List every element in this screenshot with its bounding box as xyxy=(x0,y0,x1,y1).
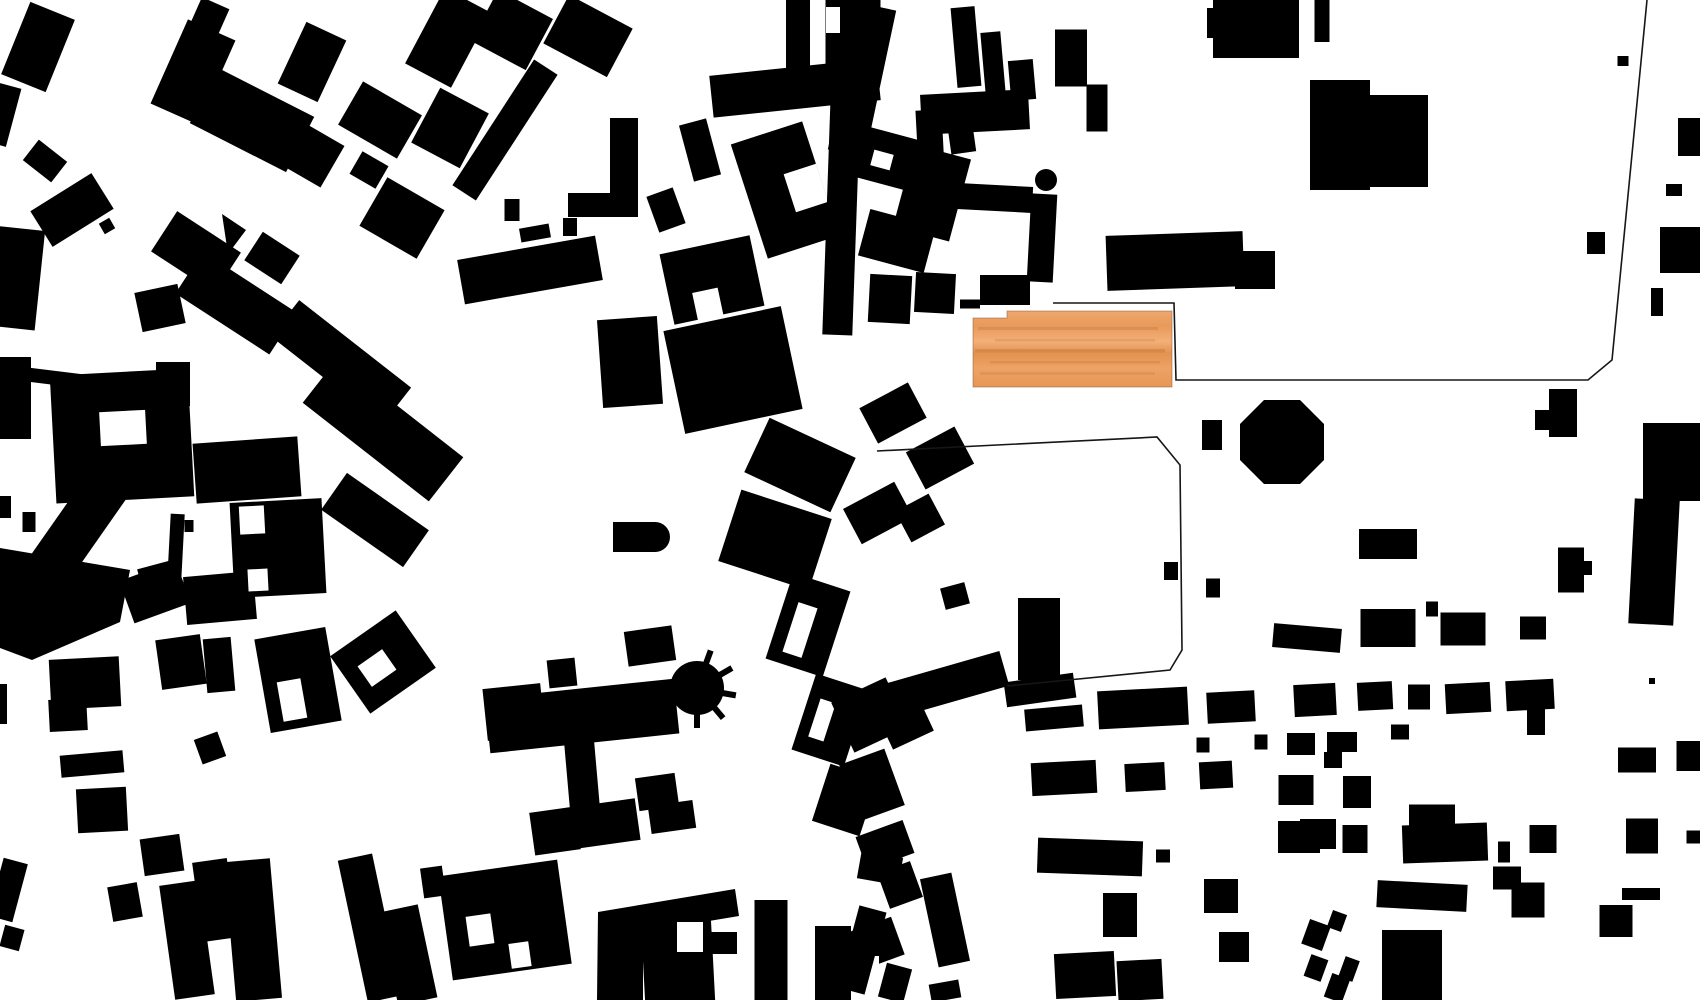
site-plan-canvas xyxy=(0,0,1700,1000)
building-footprint xyxy=(0,496,11,518)
building-footprint xyxy=(755,900,788,1000)
building-footprint xyxy=(1206,579,1220,598)
building-footprint xyxy=(1578,561,1592,575)
building-footprint xyxy=(1549,389,1577,437)
building-footprint xyxy=(1530,825,1557,853)
building-footprint xyxy=(529,807,581,856)
building-footprint xyxy=(1357,681,1393,711)
octagon-tower xyxy=(1240,400,1324,484)
building-footprint xyxy=(107,882,143,922)
building-footprint xyxy=(1164,562,1178,580)
building-footprint xyxy=(1315,0,1330,42)
building-footprint xyxy=(1643,423,1700,501)
building-footprint xyxy=(624,625,676,666)
building-footprint xyxy=(1361,609,1416,647)
building-footprint xyxy=(1677,741,1700,771)
building-footprint xyxy=(482,683,545,741)
building-footprint xyxy=(155,634,207,690)
building-footprint xyxy=(597,316,663,408)
building-footprint xyxy=(1213,0,1299,58)
courtyard xyxy=(826,7,840,33)
building-footprint xyxy=(1219,932,1249,962)
building-footprint xyxy=(1622,888,1660,900)
building-footprint xyxy=(193,436,302,503)
building-footprint xyxy=(1445,682,1492,714)
building-footprint xyxy=(1035,169,1057,191)
building-footprint xyxy=(1520,617,1546,640)
building-footprint xyxy=(1402,823,1488,864)
building-footprint xyxy=(438,860,571,981)
building-footprint xyxy=(0,357,31,439)
building-footprint xyxy=(1279,775,1314,805)
building-footprint xyxy=(1368,95,1428,187)
building-footprint xyxy=(786,0,810,73)
building-footprint xyxy=(709,932,737,954)
building-footprint xyxy=(1678,118,1700,156)
building-footprint xyxy=(1310,80,1370,190)
building-footprint xyxy=(1106,231,1245,291)
building-footprint xyxy=(1376,880,1467,912)
building-footprint xyxy=(185,520,194,532)
building-footprint xyxy=(1031,760,1098,796)
building-footprint xyxy=(1027,193,1058,282)
building-footprint xyxy=(1055,30,1087,87)
building-footprint xyxy=(1054,951,1116,999)
building-footprint xyxy=(1408,685,1430,710)
building-footprint xyxy=(1156,850,1170,863)
building-footprint xyxy=(1103,893,1137,937)
building-footprint xyxy=(1008,59,1036,101)
building-footprint xyxy=(1324,752,1342,768)
building-footprint xyxy=(1626,819,1658,854)
building-footprint xyxy=(1207,8,1217,38)
building-footprint xyxy=(1199,761,1233,790)
building-footprint xyxy=(1197,738,1210,753)
building-footprint xyxy=(1287,733,1315,755)
building-footprint xyxy=(140,834,185,876)
building-footprint xyxy=(1116,959,1163,1000)
building-footprint xyxy=(76,787,128,834)
building-footprint xyxy=(1278,821,1320,853)
building-footprint xyxy=(948,125,976,154)
building-footprint xyxy=(1441,613,1486,646)
building-footprint xyxy=(1587,232,1605,254)
building-footprint xyxy=(1343,776,1371,808)
building-footprint xyxy=(1327,732,1357,752)
courtyard xyxy=(677,922,703,952)
building-footprint xyxy=(1666,184,1682,196)
building-footprint xyxy=(1343,825,1368,853)
courtyard xyxy=(247,568,268,591)
courtyard xyxy=(466,913,495,946)
building-footprint xyxy=(1391,725,1409,740)
building-footprint xyxy=(1018,598,1060,680)
building-footprint xyxy=(48,698,88,732)
building-footprint xyxy=(568,193,638,217)
building-footprint xyxy=(1651,288,1663,316)
building-footprint xyxy=(1618,56,1629,66)
building-footprint xyxy=(1235,251,1275,289)
highlighted-site-layer xyxy=(973,311,1172,387)
building-footprint xyxy=(563,218,577,236)
building-footprint xyxy=(505,199,520,221)
building-footprint xyxy=(420,866,446,899)
building-footprint xyxy=(914,272,956,314)
building-footprint xyxy=(694,712,700,728)
building-footprint xyxy=(960,300,980,309)
wood-grain-streak xyxy=(995,339,1155,342)
building-footprint xyxy=(1660,227,1700,273)
building-footprint xyxy=(1382,930,1442,1000)
building-footprint xyxy=(1037,838,1143,877)
building-footprint xyxy=(156,362,190,406)
figure-ground-map xyxy=(0,0,1700,1000)
wood-grain-streak xyxy=(975,349,1165,353)
building-footprint xyxy=(957,183,1033,213)
wood-grain-streak xyxy=(980,372,1155,375)
building-footprint xyxy=(640,522,670,552)
building-footprint xyxy=(1204,879,1238,913)
building-footprint xyxy=(1512,883,1545,918)
building-footprint xyxy=(1202,420,1222,450)
courtyard xyxy=(239,505,265,534)
building-footprint xyxy=(1618,748,1656,773)
building-footprint xyxy=(1097,687,1189,730)
building-footprint xyxy=(1124,762,1165,792)
building-footprint xyxy=(1206,690,1256,723)
building-footprint xyxy=(23,512,36,532)
building-footprint xyxy=(1535,410,1553,430)
courtyard xyxy=(508,941,531,969)
building-footprint xyxy=(980,275,1030,305)
building-footprint xyxy=(1649,678,1655,684)
building-footprint xyxy=(203,637,236,693)
building-footprint xyxy=(0,684,7,724)
building-footprint xyxy=(1527,705,1545,735)
building-footprint xyxy=(547,658,578,689)
wood-grain-streak xyxy=(978,327,1158,330)
building-footprint xyxy=(868,274,912,324)
courtyard xyxy=(99,410,147,446)
building-footprint xyxy=(1498,842,1510,863)
building-footprint xyxy=(1687,831,1700,844)
building-footprint xyxy=(1293,683,1337,717)
building-footprint xyxy=(1255,735,1268,750)
building-footprint xyxy=(1628,498,1679,625)
wood-grain-streak xyxy=(990,361,1160,364)
building-footprint xyxy=(1426,602,1438,617)
building-footprint xyxy=(564,739,600,811)
building-footprint xyxy=(1359,529,1417,559)
building-footprint xyxy=(1087,85,1108,132)
building-footprint xyxy=(1600,905,1633,937)
